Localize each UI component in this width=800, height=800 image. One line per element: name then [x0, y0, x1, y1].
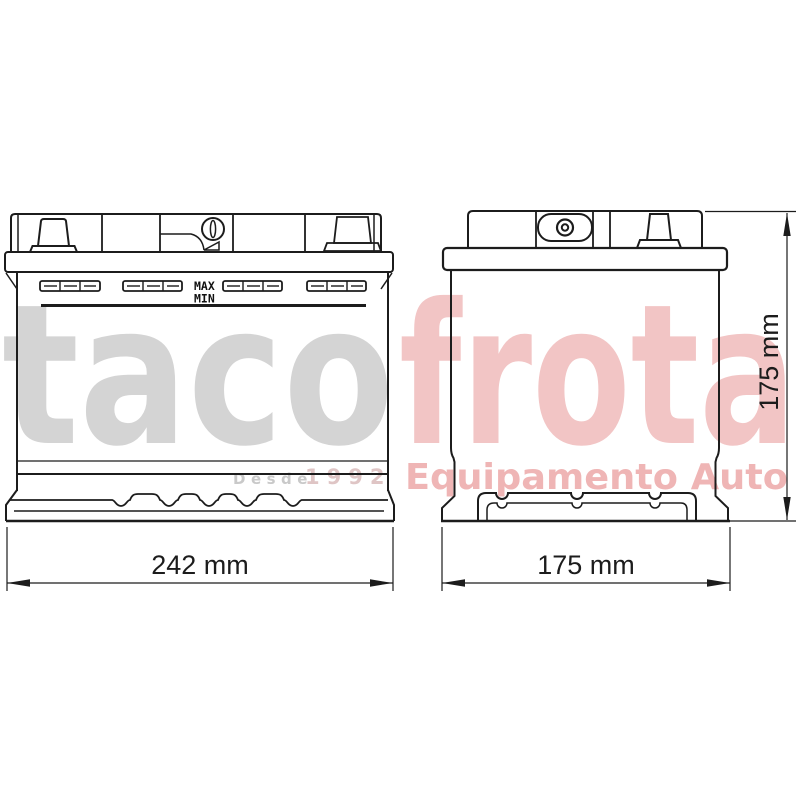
- arrow-left-icon: [7, 579, 30, 586]
- handle-hole-inner-icon: [562, 224, 568, 230]
- front-base-rib-line: [10, 494, 388, 506]
- side-terminal-base: [637, 240, 681, 248]
- vent-plug-slot-icon: [210, 221, 215, 238]
- front-width-label: 242 mm: [151, 550, 249, 580]
- dimension-front-width: 242 mm: [7, 527, 393, 591]
- handle-recess-icon: [538, 214, 592, 241]
- negative-terminal: [30, 219, 77, 252]
- arrow-right-icon: [707, 579, 730, 586]
- diagram-svg: taco frota Desde 1992 Equipamento Auto +: [0, 0, 800, 800]
- front-base-right-flare: [388, 490, 394, 521]
- vent-plug-icon: [202, 218, 224, 240]
- arrow-down-icon: [783, 497, 790, 520]
- negative-terminal-post: [38, 219, 69, 246]
- battery-technical-diagram: taco frota Desde 1992 Equipamento Auto +: [0, 0, 800, 800]
- arrow-left-icon: [442, 579, 465, 586]
- handle-hole-outer-icon: [557, 220, 573, 236]
- positive-terminal-label: +: [341, 212, 364, 245]
- arrow-up-icon: [783, 213, 790, 236]
- spout-line: [160, 234, 204, 250]
- arrow-right-icon: [370, 579, 393, 586]
- watermark-tagline-prefix: Desde: [233, 470, 313, 488]
- watermark: taco frota Desde 1992 Equipamento Auto: [2, 262, 796, 498]
- spout-wedge-icon: [204, 242, 219, 250]
- positive-terminal: +: [324, 212, 381, 251]
- watermark-tagline-year: 1992: [305, 465, 391, 489]
- dimension-side-width: 175 mm: [442, 527, 730, 591]
- watermark-brand-part2: frota: [399, 262, 796, 489]
- side-base-rail-inner: [487, 503, 687, 521]
- side-terminal-post: [647, 214, 671, 240]
- watermark-subtitle: Equipamento Auto: [405, 457, 788, 498]
- side-height-label: 175 mm: [754, 313, 784, 411]
- front-base-left-flare: [6, 490, 17, 521]
- min-level-label: MIN: [194, 292, 215, 306]
- side-width-label: 175 mm: [537, 550, 635, 580]
